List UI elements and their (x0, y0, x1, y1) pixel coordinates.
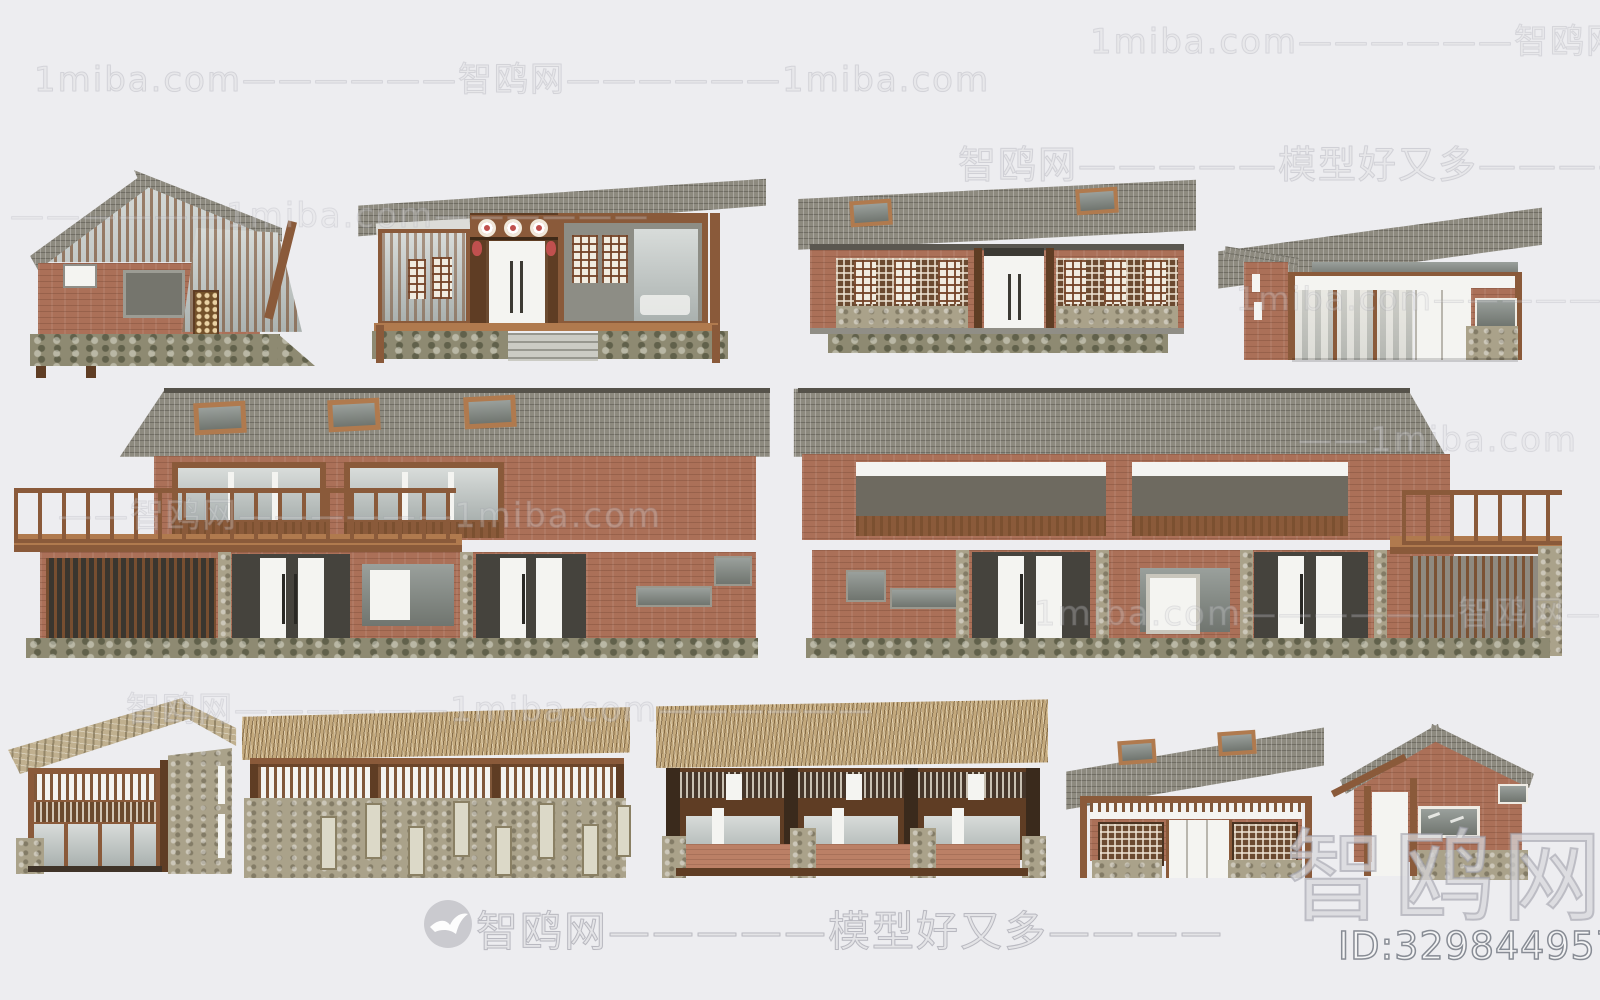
mullion (64, 824, 68, 866)
ridge-cap (798, 388, 1410, 393)
doors (1166, 820, 1232, 878)
entrance-door (984, 256, 1044, 336)
slot-window (636, 586, 712, 607)
ground-shadow (1292, 358, 1518, 362)
entrance-door (486, 241, 548, 325)
slot-window (495, 826, 512, 876)
skylight (1217, 730, 1257, 757)
post (370, 764, 378, 798)
red-lantern (472, 241, 482, 256)
stone-base (1466, 326, 1518, 360)
lattice-window (408, 259, 426, 299)
half-wall (684, 844, 1020, 868)
slot-window (712, 808, 724, 848)
skylight (1075, 187, 1119, 216)
door-leaf (536, 558, 562, 638)
foundation (806, 638, 1550, 658)
stilt (376, 325, 384, 363)
ridge-cap (164, 388, 770, 393)
slot-window (952, 808, 964, 848)
lattice-window (572, 235, 598, 283)
red-lantern (546, 241, 556, 256)
door-handle (1018, 274, 1021, 320)
watermark-line: 智鸥网—————模型好又多———— (958, 134, 1600, 189)
foundation (26, 638, 758, 658)
foundation (828, 334, 1168, 353)
brand-watermark-large: 智鸥网 (1286, 796, 1600, 941)
sill-wall (836, 306, 968, 328)
lattice-window (602, 235, 628, 283)
door-leaf (298, 558, 324, 638)
watermark-line: 智鸥网——————1miba.com—————— (126, 682, 874, 731)
watermark-slogan: 智鸥网—————模型好又多———— (476, 898, 1224, 959)
window (968, 774, 984, 800)
model-id-watermark: ID:329844957 (1338, 924, 1600, 968)
post (1080, 800, 1087, 878)
watermark-line: ——————1miba.com—————— (10, 196, 650, 236)
lattice-window (432, 257, 452, 299)
bay-interior (856, 476, 1106, 516)
watermark-line: 1miba.com——————智鸥网—————— (1090, 14, 1600, 63)
skylight (849, 199, 893, 228)
base-band (676, 868, 1028, 876)
skylight (327, 398, 381, 433)
skylight (463, 395, 517, 430)
clerestory (34, 774, 156, 800)
rafter-band (1090, 803, 1302, 819)
deck-fascia (14, 545, 462, 552)
lattice-window (938, 260, 960, 304)
stilt (712, 325, 720, 363)
deck-band (374, 323, 718, 331)
corner-post (160, 760, 168, 872)
door-handle (1020, 574, 1023, 624)
watermark-line: ——智鸥网——————1miba.com (58, 488, 662, 537)
door-handle (282, 574, 285, 624)
door-divider (1186, 820, 1188, 878)
window (63, 264, 97, 288)
sill-wall (1056, 306, 1178, 328)
skylight (193, 401, 247, 436)
window (123, 270, 185, 318)
post (492, 764, 500, 798)
lattice-window (894, 260, 916, 304)
clerestory-strip (856, 462, 1106, 476)
foundation (30, 334, 280, 366)
window (846, 774, 862, 800)
door-post (1046, 248, 1054, 336)
window (726, 774, 742, 800)
watermark-line: 1miba.com——————智鸥网 (1236, 274, 1600, 320)
clerestory-bay (1132, 462, 1348, 536)
window (714, 556, 752, 586)
door-opening (476, 554, 586, 640)
glazed-front (34, 824, 156, 866)
door-post (974, 248, 982, 336)
slot-window (616, 805, 631, 857)
stone-wall (244, 798, 626, 878)
post (86, 366, 96, 378)
window (846, 570, 886, 602)
bay-sill-slats (856, 516, 1106, 536)
floor-line (28, 866, 162, 872)
slot-window (408, 826, 425, 876)
door-divider (1206, 820, 1208, 878)
clerestory-strip (1132, 462, 1348, 476)
slot-window (582, 824, 599, 876)
foundation (598, 331, 728, 359)
entry-steps (508, 333, 598, 361)
pier (460, 552, 473, 640)
slot-window (365, 803, 382, 859)
door-handle (522, 574, 525, 624)
post (36, 366, 46, 378)
door-handle (520, 261, 523, 313)
post (616, 764, 624, 798)
lattice-window (854, 260, 876, 304)
deck-fascia (1390, 547, 1562, 554)
foundation (372, 331, 508, 359)
foundation-slope (278, 334, 315, 366)
slot-window (832, 808, 844, 848)
door-handle (294, 574, 297, 624)
post (250, 764, 258, 798)
model-preview-image: 1miba.com——————智鸥网——————1miba.com 1miba.… (0, 0, 1600, 1000)
slot-window (320, 816, 337, 870)
slat-band (34, 802, 156, 822)
lattice-window (1104, 260, 1126, 304)
slot-window (218, 814, 225, 858)
door-handle (510, 261, 513, 313)
transom (984, 248, 1044, 256)
mullion (98, 824, 102, 866)
house-brick-longhouse (798, 178, 1196, 353)
watermark-line: ——1miba.com (1298, 420, 1578, 460)
lattice-window (1144, 260, 1166, 304)
slot-window (453, 801, 470, 857)
window (370, 570, 410, 620)
pier (218, 552, 231, 640)
sofa-silhouette (640, 295, 690, 315)
door-handle (1008, 274, 1011, 320)
watermark-line: 1miba.com——————智鸥网——————1miba.com (34, 52, 990, 101)
slot-window (218, 766, 225, 804)
pier (956, 550, 969, 640)
stone-base (1092, 860, 1162, 878)
seagull-logo-icon (424, 900, 472, 948)
terrace-railing (1402, 490, 1562, 545)
firewood-stack (193, 290, 219, 338)
slot-window (538, 803, 555, 859)
clerestory-bay (856, 462, 1106, 536)
watermark-line: 1miba.com——————智鸥网———— (1034, 586, 1600, 635)
skylight (1117, 739, 1157, 766)
mullion (130, 824, 134, 866)
lattice-window (1064, 260, 1086, 304)
post (710, 213, 720, 327)
slat-screen (46, 558, 216, 638)
bay-sill-slats (1132, 516, 1348, 536)
beam (1080, 796, 1312, 803)
bay-interior (1132, 476, 1348, 516)
door-opening (232, 554, 350, 640)
